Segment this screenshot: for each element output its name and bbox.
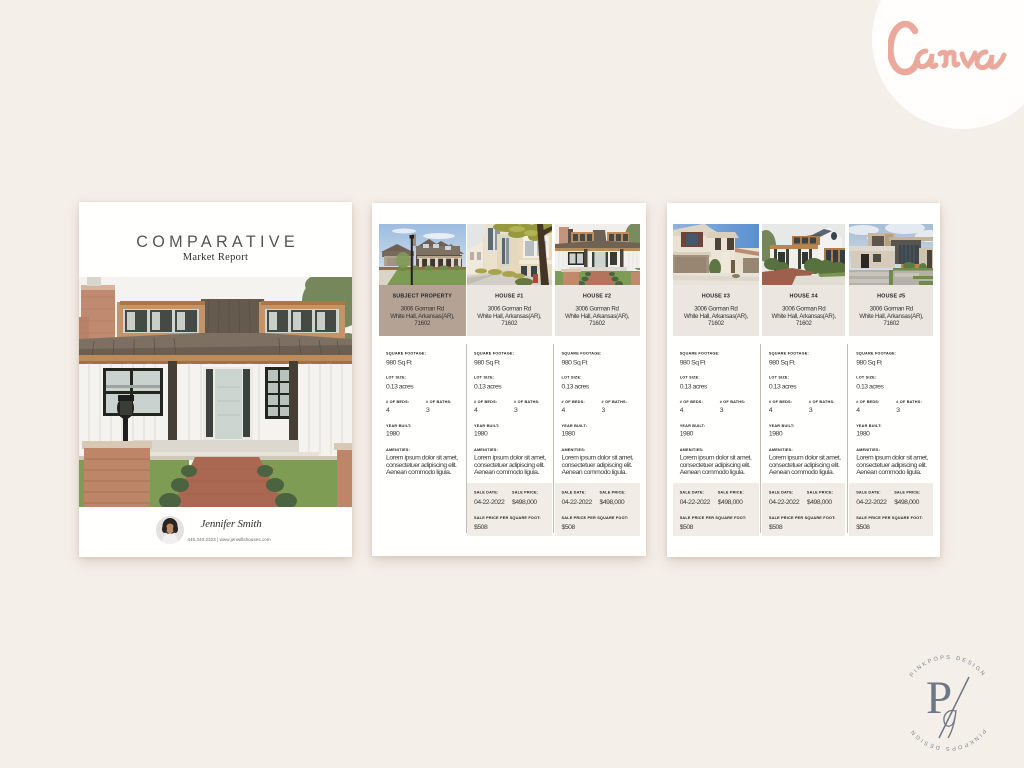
- svg-text:PINKPOPS DESIGN: PINKPOPS DESIGN: [909, 727, 987, 751]
- svg-text:P: P: [926, 672, 952, 724]
